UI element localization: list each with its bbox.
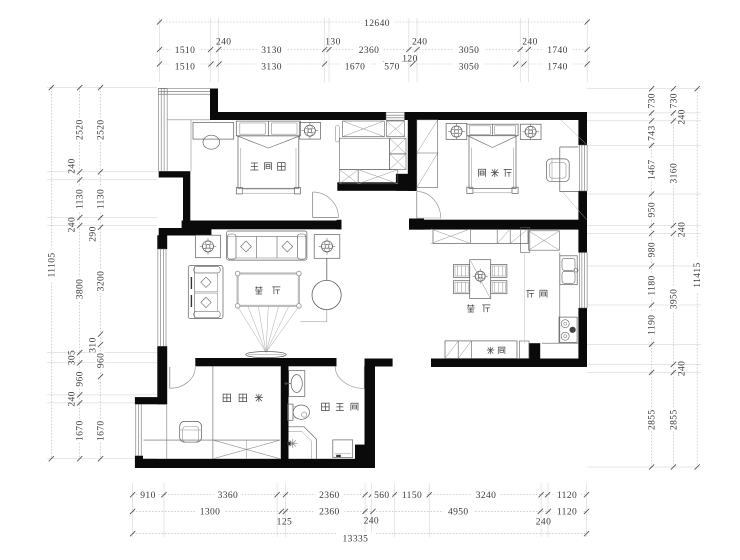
svg-text:3050: 3050 [459, 62, 480, 72]
svg-text:2360: 2360 [319, 491, 340, 501]
svg-text:743: 743 [648, 125, 658, 140]
svg-text:2855: 2855 [648, 409, 658, 430]
svg-text:1130: 1130 [76, 189, 86, 209]
svg-text:12640: 12640 [364, 19, 390, 29]
svg-text:3800: 3800 [76, 279, 86, 300]
svg-text:730: 730 [669, 93, 679, 108]
svg-text:3200: 3200 [97, 271, 107, 292]
svg-text:310: 310 [89, 337, 99, 352]
svg-text:1180: 1180 [648, 275, 658, 295]
svg-text:1467: 1467 [648, 159, 658, 180]
svg-text:960: 960 [97, 353, 107, 368]
svg-text:240: 240 [68, 391, 78, 406]
svg-text:1510: 1510 [175, 46, 196, 56]
svg-text:730: 730 [648, 93, 658, 108]
svg-text:980: 980 [648, 242, 658, 257]
svg-text:4950: 4950 [448, 508, 469, 518]
svg-text:3360: 3360 [218, 491, 239, 501]
svg-text:130: 130 [325, 37, 340, 47]
svg-text:240: 240 [522, 37, 537, 47]
svg-text:560: 560 [374, 491, 389, 501]
svg-text:240: 240 [68, 217, 78, 232]
svg-text:3050: 3050 [459, 46, 480, 56]
svg-text:950: 950 [648, 202, 658, 217]
svg-text:1130: 1130 [97, 189, 107, 209]
svg-text:2360: 2360 [319, 508, 340, 518]
svg-text:120: 120 [402, 55, 417, 65]
svg-text:240: 240 [68, 158, 78, 173]
svg-text:240: 240 [677, 361, 687, 376]
svg-text:2855: 2855 [669, 409, 679, 430]
svg-text:125: 125 [277, 518, 292, 528]
svg-text:3130: 3130 [261, 62, 282, 72]
svg-text:240: 240 [677, 109, 687, 124]
svg-text:2520: 2520 [97, 119, 107, 140]
svg-text:1670: 1670 [345, 62, 366, 72]
svg-text:3160: 3160 [669, 163, 679, 184]
svg-text:305: 305 [68, 350, 78, 365]
svg-text:1670: 1670 [76, 420, 86, 441]
svg-text:1120: 1120 [557, 491, 577, 501]
svg-text:1510: 1510 [175, 62, 196, 72]
svg-text:1670: 1670 [97, 420, 107, 441]
svg-text:3950: 3950 [669, 289, 679, 310]
svg-text:1740: 1740 [547, 62, 568, 72]
svg-text:1740: 1740 [547, 46, 568, 56]
svg-text:3130: 3130 [261, 46, 282, 56]
svg-text:13335: 13335 [343, 534, 369, 544]
svg-text:3240: 3240 [476, 491, 497, 501]
svg-text:2520: 2520 [76, 119, 86, 140]
svg-text:570: 570 [384, 62, 399, 72]
svg-text:1120: 1120 [557, 508, 577, 518]
svg-text:1150: 1150 [402, 491, 422, 501]
svg-text:240: 240 [412, 37, 427, 47]
svg-text:240: 240 [216, 37, 231, 47]
svg-text:240: 240 [536, 518, 551, 528]
svg-text:290: 290 [89, 226, 99, 241]
svg-text:11415: 11415 [693, 262, 703, 287]
svg-text:960: 960 [76, 371, 86, 386]
svg-text:240: 240 [364, 517, 379, 527]
svg-text:11105: 11105 [47, 252, 57, 277]
svg-text:1300: 1300 [200, 508, 221, 518]
svg-text:2360: 2360 [359, 46, 380, 56]
svg-text:240: 240 [677, 222, 687, 237]
svg-text:910: 910 [140, 491, 155, 501]
svg-text:1190: 1190 [648, 315, 658, 335]
